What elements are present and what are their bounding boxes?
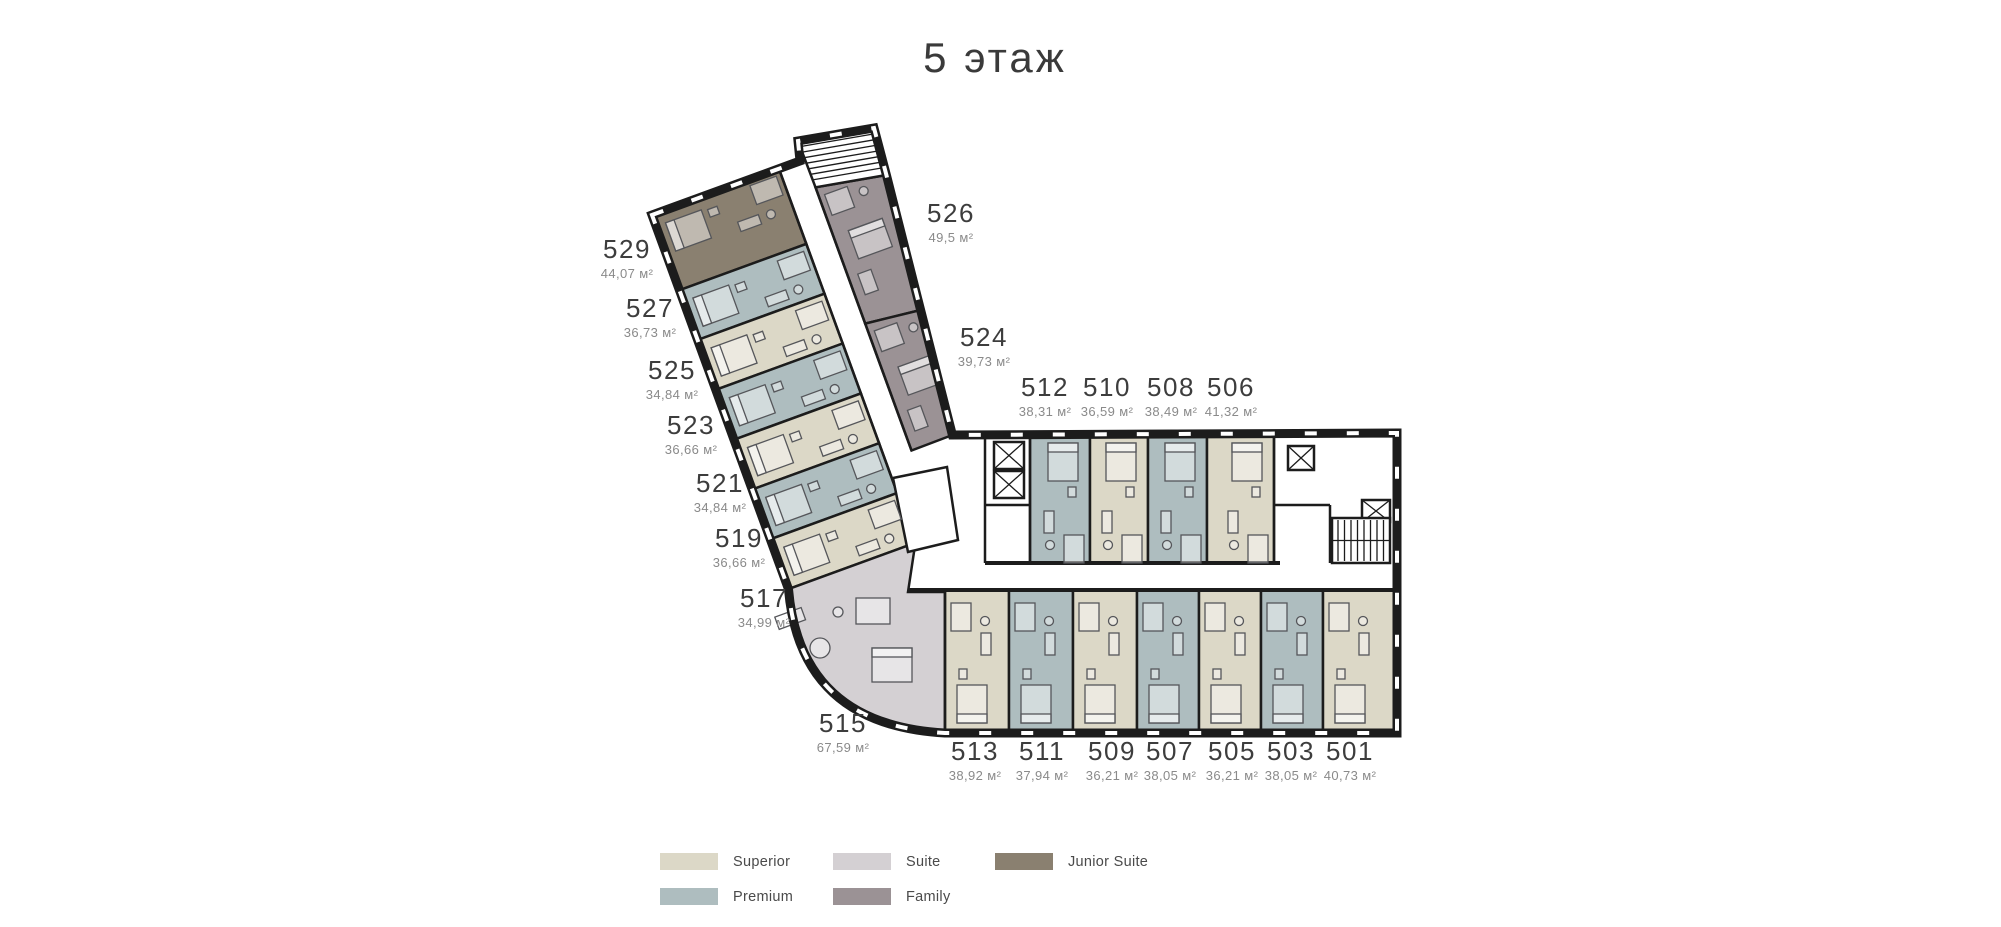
legend-label-family: Family bbox=[906, 889, 951, 905]
room-label-519: 51936,66 м² bbox=[713, 525, 766, 570]
room-label-526: 52649,5 м² bbox=[927, 200, 975, 245]
room-label-501: 50140,73 м² bbox=[1324, 738, 1377, 783]
legend-swatch-junior-suite bbox=[995, 853, 1053, 870]
legend-label-premium: Premium bbox=[733, 889, 793, 905]
floor-plan bbox=[0, 0, 2001, 927]
room-label-510: 51036,59 м² bbox=[1081, 374, 1134, 419]
legend-item-junior-suite: Junior Suite bbox=[995, 853, 1148, 870]
legend-label-suite: Suite bbox=[906, 854, 941, 870]
room-label-517: 51734,99 м² bbox=[738, 585, 791, 630]
legend-item-premium: Premium bbox=[660, 888, 793, 905]
legend-label-junior-suite: Junior Suite bbox=[1068, 854, 1148, 870]
room-label-523: 52336,66 м² bbox=[665, 412, 718, 457]
room-label-529: 52944,07 м² bbox=[601, 236, 654, 281]
room-label-513: 51338,92 м² bbox=[949, 738, 1002, 783]
room-label-521: 52134,84 м² bbox=[694, 470, 747, 515]
legend-swatch-family bbox=[833, 888, 891, 905]
room-label-506: 50641,32 м² bbox=[1205, 374, 1258, 419]
room-label-525: 52534,84 м² bbox=[646, 357, 699, 402]
room-label-524: 52439,73 м² bbox=[958, 324, 1011, 369]
room-label-515: 51567,59 м² bbox=[817, 710, 870, 755]
room-label-512: 51238,31 м² bbox=[1019, 374, 1072, 419]
legend-item-suite: Suite bbox=[833, 853, 941, 870]
room-label-503: 50338,05 м² bbox=[1265, 738, 1318, 783]
elevator-bay bbox=[994, 442, 1024, 498]
room-label-508: 50838,49 м² bbox=[1145, 374, 1198, 419]
legend-swatch-superior bbox=[660, 853, 718, 870]
legend-item-family: Family bbox=[833, 888, 951, 905]
legend-item-superior: Superior bbox=[660, 853, 790, 870]
legend-label-superior: Superior bbox=[733, 854, 790, 870]
room-label-509: 50936,21 м² bbox=[1086, 738, 1139, 783]
room-label-527: 52736,73 м² bbox=[624, 295, 677, 340]
room-label-505: 50536,21 м² bbox=[1206, 738, 1259, 783]
room-label-507: 50738,05 м² bbox=[1144, 738, 1197, 783]
legend-swatch-suite bbox=[833, 853, 891, 870]
room-label-511: 51137,94 м² bbox=[1016, 738, 1069, 783]
legend-swatch-premium bbox=[660, 888, 718, 905]
